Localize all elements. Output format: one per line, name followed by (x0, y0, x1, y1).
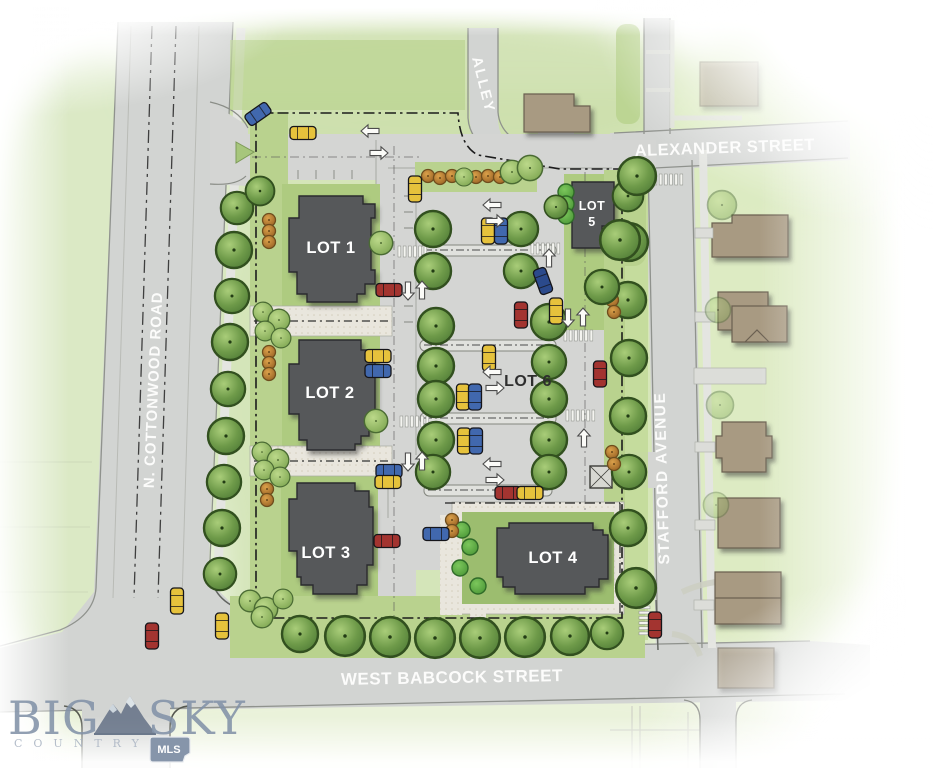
car-icon (374, 535, 400, 548)
trash-enclosure (590, 466, 612, 488)
tree-icon (415, 211, 451, 247)
lot-label-5-line1: LOT (579, 199, 606, 213)
big-sky-mls-logo: BIG SKY COUNTRY MLS (8, 692, 288, 750)
lot-label-3: LOT 3 (301, 544, 350, 562)
otree-icon (263, 368, 276, 381)
tree-icon (585, 270, 619, 304)
tree-icon (551, 617, 589, 655)
otree-icon (261, 494, 274, 507)
car-icon (376, 284, 402, 297)
car-icon (457, 384, 470, 410)
street-label-babcock: WEST BABCOCK STREET (341, 666, 563, 689)
car-icon (375, 476, 401, 489)
road-stafford-north-stub (644, 18, 670, 136)
tree-icon (418, 348, 454, 384)
tree-icon (211, 372, 245, 406)
mls-badge: MLS (148, 736, 192, 768)
lot-label-1: LOT 1 (306, 239, 355, 257)
tree-icon (418, 308, 454, 344)
tree-icon (415, 618, 455, 658)
otree-icon (482, 170, 495, 183)
car-icon (171, 588, 184, 614)
tree-icon (504, 212, 538, 246)
building-lot3 (289, 483, 373, 594)
house-east-5 (715, 572, 781, 624)
tree2-icon (517, 155, 542, 180)
tree-icon (591, 617, 623, 649)
tree2-icon (273, 589, 293, 609)
shrub-icon (452, 560, 468, 576)
tree2-icon (369, 231, 392, 254)
tree2-icon (251, 606, 273, 628)
tree2-icon (364, 409, 387, 432)
tree2-icon (703, 492, 728, 517)
tree-icon (370, 617, 410, 657)
car-icon (216, 613, 229, 639)
car-icon (649, 612, 662, 638)
tree2-icon (705, 297, 730, 322)
car-icon (594, 361, 607, 387)
otree-icon (608, 458, 621, 471)
otree-icon (434, 172, 447, 185)
car-icon (517, 487, 543, 500)
tree-icon (208, 418, 244, 454)
shrub-icon (470, 578, 486, 594)
tree-icon (544, 195, 567, 218)
logo-word-big: BIG (8, 697, 100, 739)
lot-label-6: LOT 6 (504, 373, 552, 390)
logo-word-sky: SKY (148, 697, 246, 739)
lot-label-4: LOT 4 (528, 549, 578, 567)
otree-icon (608, 306, 621, 319)
car-icon (515, 302, 528, 328)
house-ne-corner (700, 62, 758, 106)
tree-icon (618, 157, 656, 195)
tree-icon (418, 381, 454, 417)
tree-icon (610, 398, 646, 434)
tree-icon (531, 422, 567, 458)
tree-icon (504, 254, 538, 288)
tree-icon (325, 616, 365, 656)
tree-icon (532, 455, 566, 489)
car-icon (365, 350, 391, 363)
lot-label-2: LOT 2 (305, 384, 354, 402)
house-east-6 (718, 648, 774, 688)
car-icon (458, 428, 471, 454)
car-icon (423, 528, 449, 541)
tree2-icon (455, 168, 473, 186)
car-icon (469, 384, 482, 410)
tree-icon (460, 618, 500, 658)
car-icon (550, 298, 563, 324)
tree-icon (204, 558, 236, 590)
otree-icon (606, 446, 619, 459)
tree-icon (215, 279, 249, 313)
lot-label-5-line2: 5 (588, 215, 595, 229)
tree-icon (246, 177, 275, 206)
otree-icon (263, 236, 276, 249)
shrub-icon (462, 539, 478, 555)
mls-badge-text: MLS (157, 744, 180, 756)
tree-icon (204, 510, 240, 546)
tree-icon (505, 617, 545, 657)
tree-icon (282, 616, 318, 652)
tree-icon (610, 510, 646, 546)
site-plan-page: ALEXANDER STREET WEST BABCOCK STREET N. … (0, 0, 933, 768)
site-plan-map: ALEXANDER STREET WEST BABCOCK STREET N. … (0, 0, 933, 768)
car-icon (290, 127, 316, 140)
tree-icon (207, 465, 241, 499)
tree2-icon (271, 328, 291, 348)
car-icon (470, 428, 483, 454)
tree2-icon (708, 191, 737, 220)
tree2-icon (707, 392, 734, 419)
car-icon (146, 623, 159, 649)
car-icon (365, 365, 391, 378)
car-icon (409, 176, 422, 202)
tree2-icon (270, 467, 290, 487)
otree-icon (422, 170, 435, 183)
tree-icon (600, 220, 640, 260)
tree-icon (616, 568, 656, 608)
tree-icon (418, 422, 454, 458)
tree-icon (216, 232, 252, 268)
house-east-3 (716, 422, 772, 472)
tree-icon (212, 324, 248, 360)
tree-icon (611, 340, 647, 376)
